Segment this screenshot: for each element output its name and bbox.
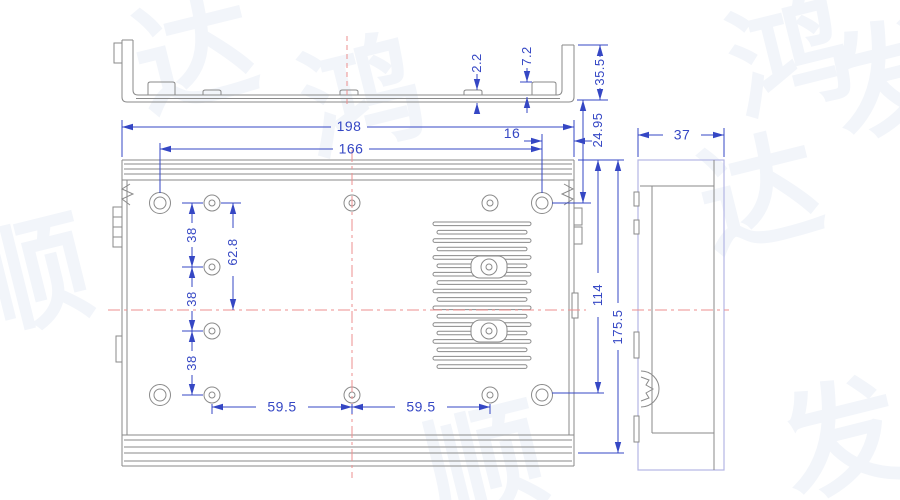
vent-slots: [433, 222, 531, 368]
side-edge-tab: [634, 192, 639, 206]
dim-rib-low-height: 2.2: [469, 53, 484, 73]
watermark-char: 发: [768, 361, 900, 500]
side-edge-tab: [634, 416, 639, 442]
right-edge-tab: [572, 293, 578, 318]
watermark-char: 顺: [0, 199, 105, 358]
right-spring-symbol: [562, 184, 573, 205]
side-edge-tab: [634, 220, 639, 234]
dim-pitch-v-mid: 38: [184, 291, 199, 306]
dim-flange-height: 35.5: [592, 58, 607, 85]
dim-top-hole-offset: 24.95: [590, 112, 605, 147]
rib-high-right: [532, 82, 556, 95]
watermark-char: 达: [121, 0, 270, 135]
dim-hole-span-height: 114: [590, 284, 605, 306]
vent-boss-lower: [471, 320, 507, 342]
dim-rib-high-height: 7.2: [519, 46, 534, 66]
cable-grommet: [641, 371, 659, 407]
dim-pitch-h-right: 59.5: [406, 399, 435, 415]
dim-pitch-v-top: 38: [184, 227, 199, 242]
dim-right-hole-offset: 16: [504, 125, 521, 141]
watermark-layer: 达 鸿 顺 鸿 发 达 发 顺: [0, 0, 900, 500]
dim-mount-hole-span: 166: [339, 141, 364, 157]
dim-overall-depth: 37: [674, 127, 691, 143]
rib-low: [464, 90, 482, 95]
top-profile-dimensions: 2.2 7.2 35.5: [469, 45, 608, 113]
left-edge-tab: [116, 336, 122, 362]
dim-center-offset: 62.8: [225, 238, 240, 265]
side-view: [632, 160, 729, 470]
dim-overall-width: 198: [337, 118, 362, 134]
dim-pitch-v-bottom: 38: [184, 355, 199, 370]
cad-drawing: 达 鸿 顺 鸿 发 达 发 顺 2.2 7.2 35.5: [0, 0, 900, 500]
corner-holes: [150, 193, 553, 406]
left-flange-tab: [114, 43, 122, 63]
dim-overall-height: 175.5: [610, 309, 625, 344]
watermark-char: 达: [686, 116, 835, 275]
dim-pitch-h-left: 59.5: [267, 399, 296, 415]
left-edge-clip: [113, 207, 122, 247]
side-edge-tab: [634, 332, 639, 358]
small-holes: [204, 195, 498, 403]
vent-boss-upper: [471, 256, 507, 278]
drawing-canvas: 达 鸿 顺 鸿 发 达 发 顺 2.2 7.2 35.5: [0, 0, 900, 500]
right-edge-clip: [574, 208, 582, 244]
